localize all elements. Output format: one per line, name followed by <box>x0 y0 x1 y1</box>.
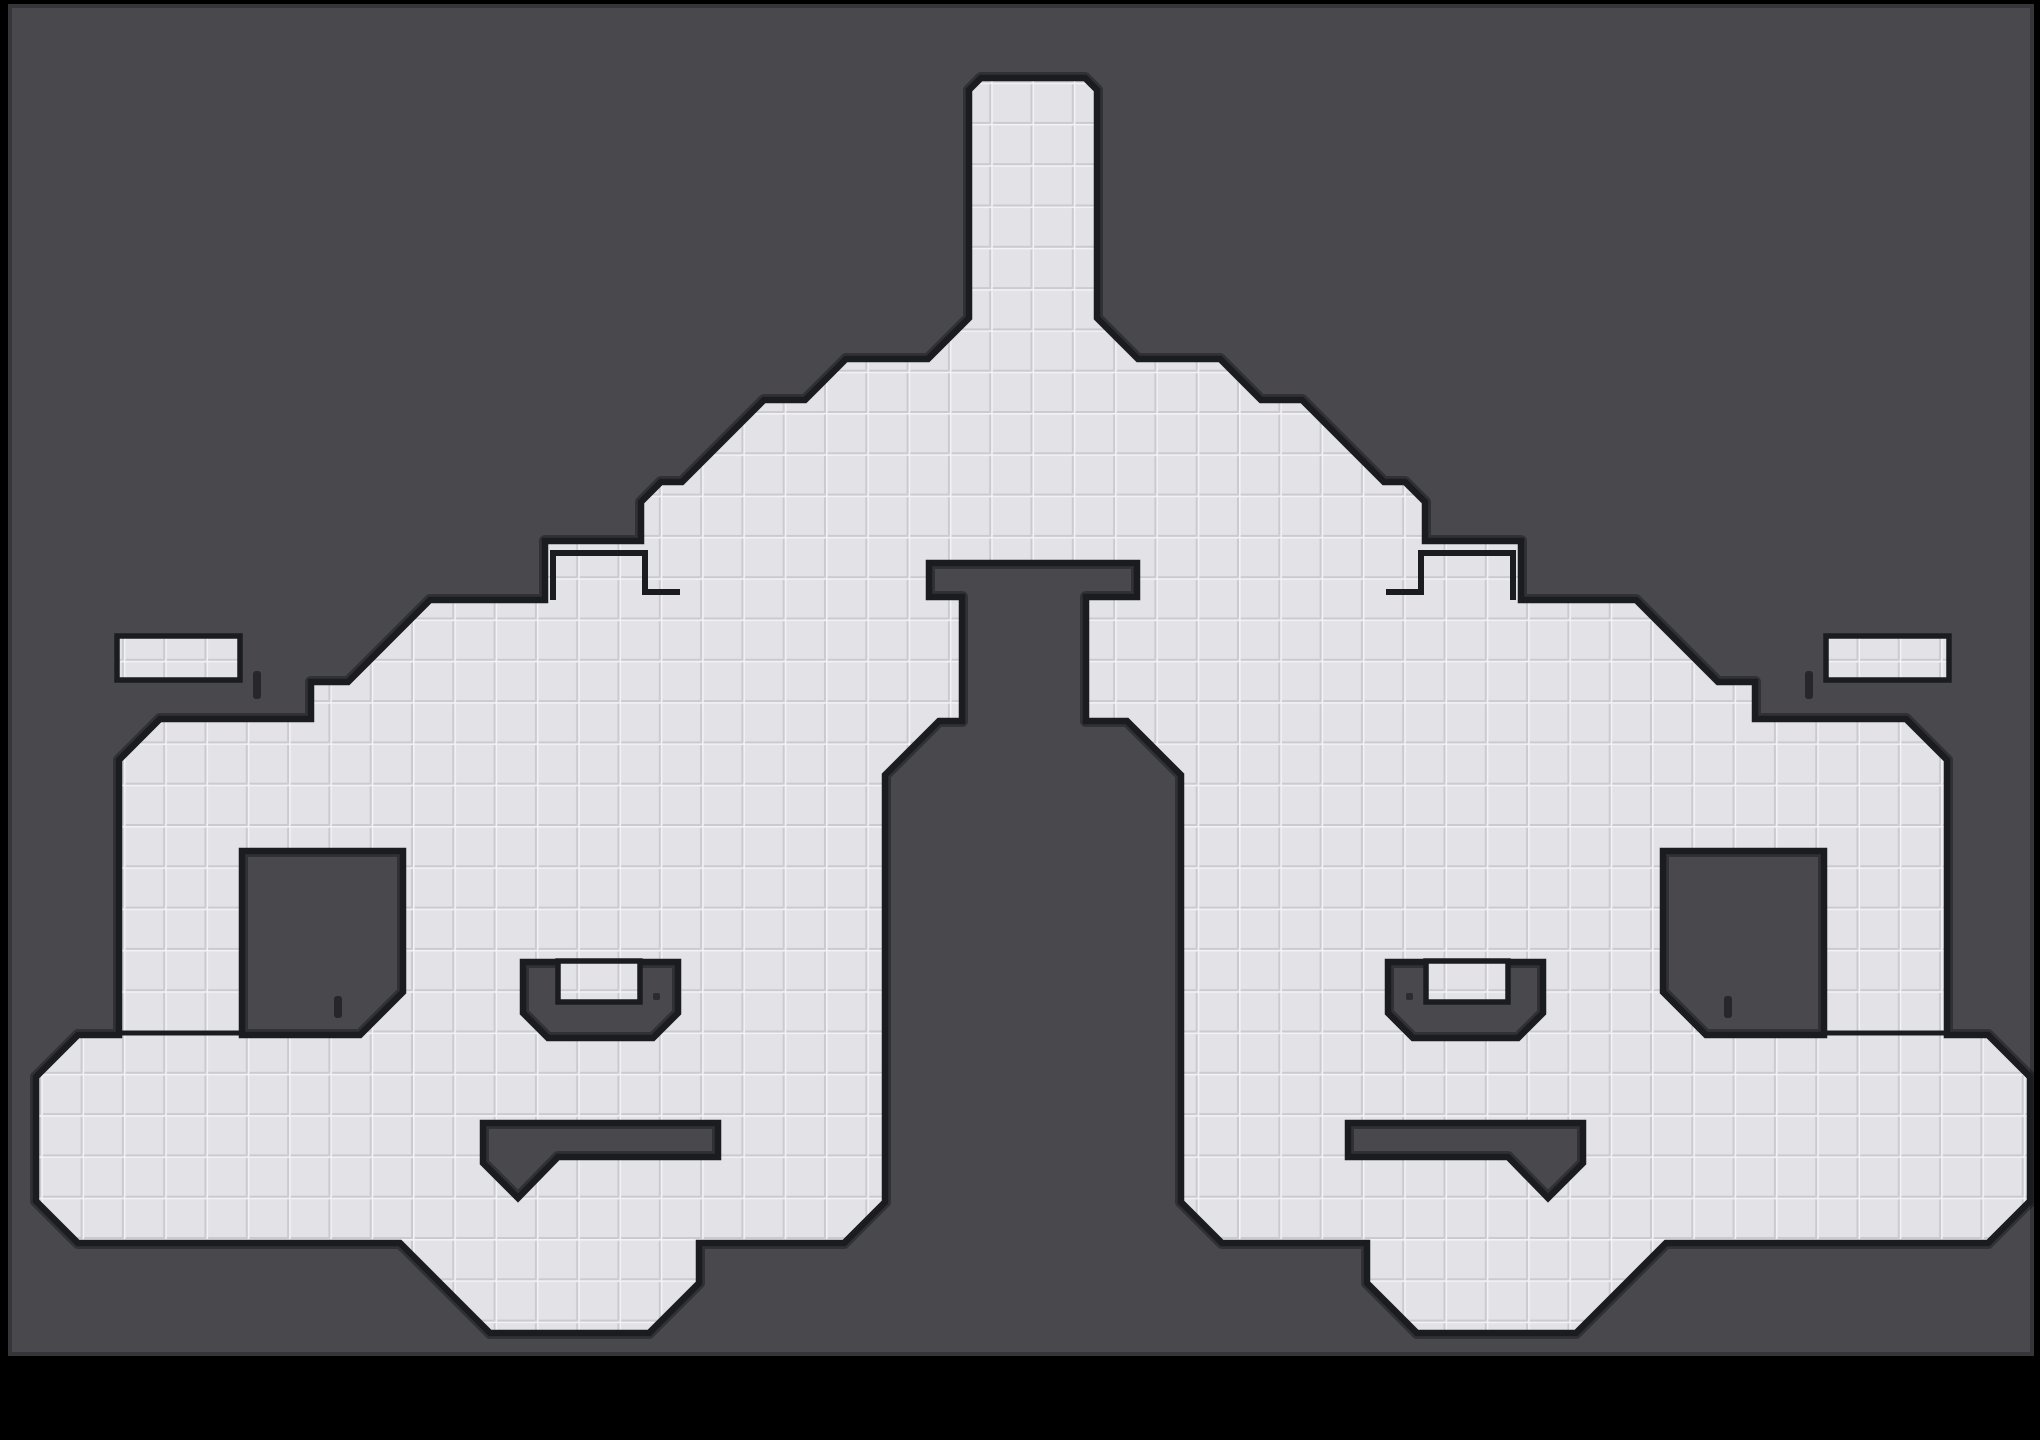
game-viewport <box>0 0 2040 1440</box>
platform <box>558 961 640 1002</box>
level-canvas[interactable] <box>0 0 2040 1440</box>
door-dot <box>1406 993 1413 1000</box>
platform <box>1426 961 1508 1002</box>
door-marker <box>253 671 261 699</box>
door-marker <box>1805 671 1813 699</box>
platform <box>1826 636 1949 680</box>
door-dot <box>653 993 660 1000</box>
door-marker <box>334 996 342 1018</box>
door-marker <box>1724 996 1732 1018</box>
platform <box>117 636 240 680</box>
